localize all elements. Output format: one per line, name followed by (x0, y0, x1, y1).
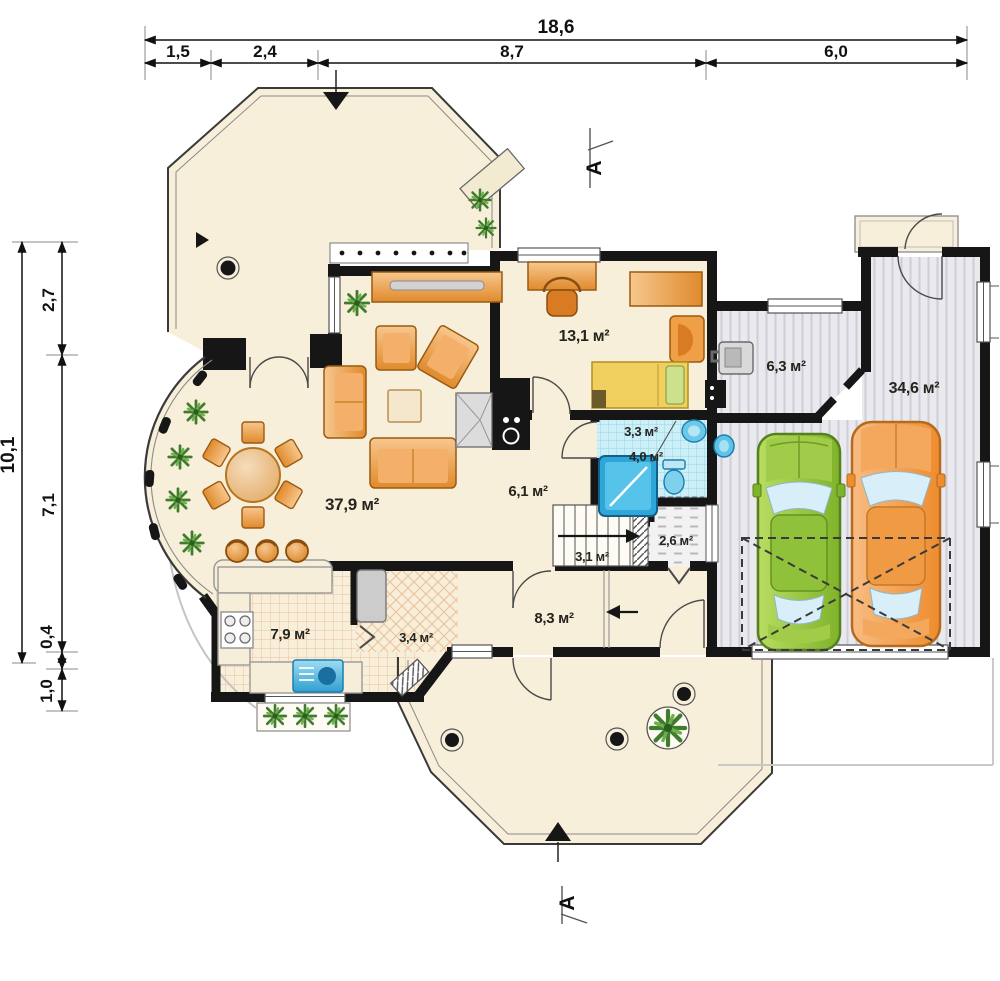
room-label-rear-hall: 2,6 м² (659, 533, 694, 548)
room-label-living: 37,9 м² (325, 495, 380, 514)
floor-plan-page: 37,9 м² 13,1 м² 6,3 м² 34,6 м² 3,3 м² 4,… (0, 0, 1000, 981)
garage-washbasin (714, 435, 734, 457)
dim-top-seg4: 6,0 (824, 42, 848, 61)
kitchen-sink (293, 660, 343, 692)
fireplace-wall-block (492, 378, 530, 450)
dim-left-total: 10,1 (0, 436, 19, 473)
plant-icon (345, 291, 369, 315)
plant-icon (476, 218, 495, 237)
window-garage-east-2 (977, 462, 999, 527)
dim-left-seg3: 0,4 (37, 625, 56, 649)
bed-step (592, 390, 606, 408)
pergola-band (330, 243, 468, 263)
plant-icon (181, 532, 204, 555)
sideboard (372, 272, 502, 302)
dim-top-seg3: 8,7 (500, 42, 524, 61)
plant-icon (167, 489, 190, 512)
car-green (753, 434, 845, 650)
plant-icon (325, 705, 347, 727)
dim-left-seg1: 2,7 (39, 288, 58, 312)
opening-rearhall-garage (706, 505, 718, 562)
window-bedroom-top (518, 248, 600, 262)
room-label-stairs: 3,1 м² (575, 549, 610, 564)
wardrobe (630, 272, 702, 306)
room-label-pantry: 3,4 м² (399, 630, 434, 645)
fridge (357, 570, 386, 622)
sofa (370, 438, 456, 488)
stove (221, 612, 253, 648)
room-label-hall: 6,1 м² (508, 483, 548, 500)
section-mark-bottom: A (556, 886, 587, 924)
plant-icon (651, 711, 686, 746)
section-label-bottom: A (556, 895, 579, 910)
car-orange (847, 422, 945, 646)
dimensions-top: 18,6 1,5 2,4 8,7 6,0 (145, 17, 967, 80)
room-label-kitchen: 7,9 м² (270, 626, 310, 643)
floor-plan-canvas: 37,9 м² 13,1 м² 6,3 м² 34,6 м² 3,3 м² 4,… (0, 0, 1000, 981)
armchair (376, 326, 416, 370)
dim-left-seg4: 1,0 (37, 679, 56, 703)
room-label-garage: 34,6 м² (889, 380, 940, 397)
room-label-wc: 3,3 м² (624, 424, 659, 439)
bed (592, 362, 688, 408)
dimensions-left: 10,1 2,7 7,1 0,4 1,0 (0, 242, 78, 711)
plant-icon (294, 705, 316, 727)
meter-box (705, 380, 726, 408)
sofa (324, 366, 366, 438)
plant-icon (264, 705, 286, 727)
toilet (663, 460, 685, 494)
counter (218, 567, 332, 593)
room-label-corridor: 8,3 м² (534, 610, 574, 627)
room-label-bedroom: 13,1 м² (559, 328, 610, 345)
room-label-utility: 6,3 м² (766, 358, 806, 375)
coffee-table (388, 390, 421, 422)
plant-icon (169, 446, 192, 469)
flower-box (257, 703, 350, 731)
plant-icon (185, 401, 208, 424)
dim-left-seg2: 7,1 (39, 493, 58, 517)
section-mark-top: A (583, 128, 613, 188)
shower (599, 456, 657, 516)
bedroom-armchair (670, 316, 704, 362)
window-utility-top (768, 299, 842, 313)
plant-icon (470, 190, 491, 211)
dim-top-seg2: 2,4 (253, 42, 277, 61)
bar-stools (226, 540, 308, 562)
dim-top-seg1: 1,5 (166, 42, 190, 61)
section-label-top: A (583, 160, 606, 175)
sink (682, 420, 706, 442)
meter-dot (710, 386, 714, 390)
meter-dot (710, 396, 714, 400)
window-garage-east-1 (977, 282, 999, 342)
dim-top-total: 18,6 (538, 17, 575, 38)
desk (528, 262, 596, 290)
window-corridor-bottom (452, 645, 492, 658)
window-living-west (329, 277, 340, 333)
